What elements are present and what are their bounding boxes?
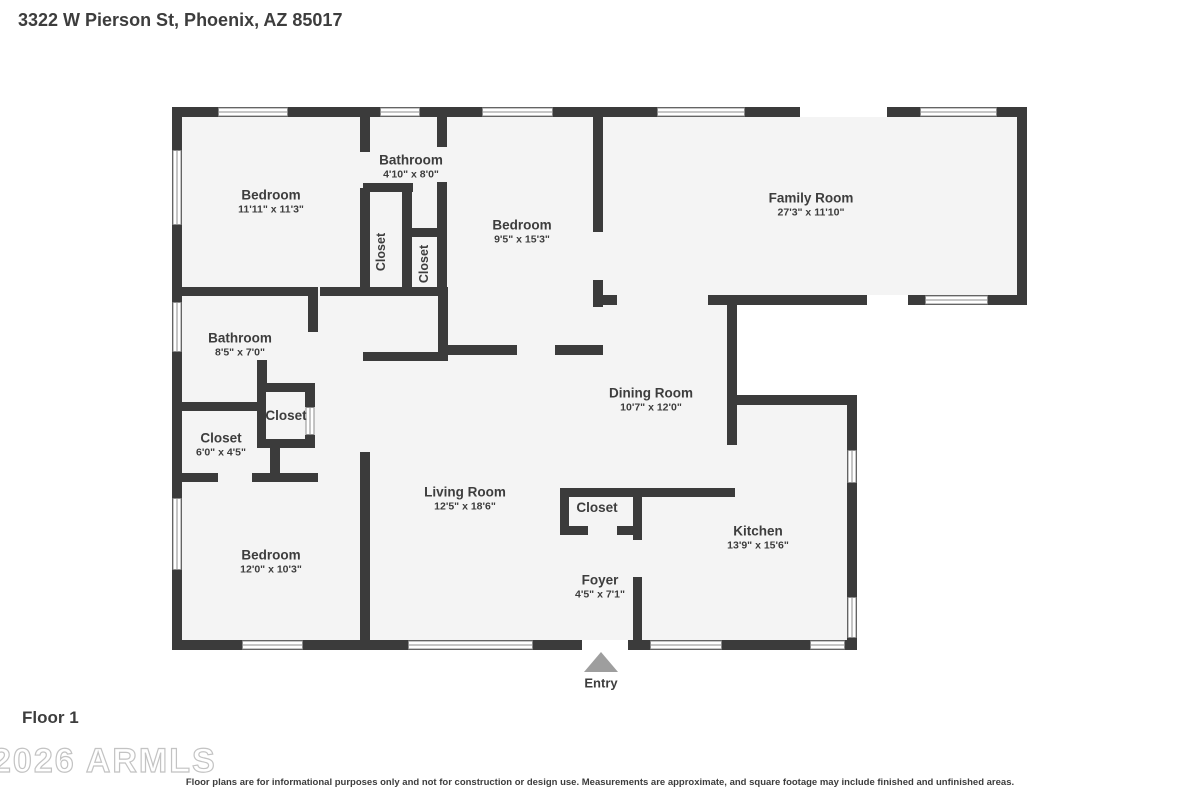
room-label-bathroom-n: Bathroom 4'10" x 8'0" [379, 153, 443, 182]
entry-arrow-icon [584, 652, 618, 672]
floor-plan-page: 3322 W Pierson St, Phoenix, AZ 85017 [0, 0, 1200, 800]
room-label-bedroom-sw: Bedroom 12'0" x 10'3" [240, 548, 302, 577]
room-label-closet-w: Closet 6'0" x 4'5" [196, 431, 246, 460]
room-label-closet-n2: Closet [417, 245, 431, 283]
room-label-dining-room: Dining Room 10'7" x 12'0" [609, 386, 693, 415]
room-label-closet-mid: Closet [265, 408, 306, 424]
floor-plan: Bedroom 11'11" x 11'3" Bathroom 4'10" x … [0, 0, 1200, 800]
floor-label: Floor 1 [22, 708, 79, 728]
room-label-kitchen: Kitchen 13'9" x 15'6" [727, 524, 789, 553]
room-label-bathroom-w: Bathroom 8'5" x 7'0" [208, 331, 272, 360]
room-label-bedroom-n: Bedroom 9'5" x 15'3" [492, 218, 551, 247]
room-label-closet-foyer: Closet [576, 500, 617, 516]
disclaimer: Floor plans are for informational purpos… [0, 777, 1200, 788]
room-label-bedroom-nw: Bedroom 11'11" x 11'3" [238, 188, 304, 217]
room-label-family-room: Family Room 27'3" x 11'10" [769, 191, 854, 220]
room-label-closet-n1: Closet [374, 233, 388, 271]
watermark: 2026 ARMLS [0, 742, 217, 781]
entry-label: Entry [584, 676, 617, 691]
room-label-living-room: Living Room 12'5" x 18'6" [424, 485, 506, 514]
room-label-foyer: Foyer 4'5" x 7'1" [575, 573, 625, 602]
